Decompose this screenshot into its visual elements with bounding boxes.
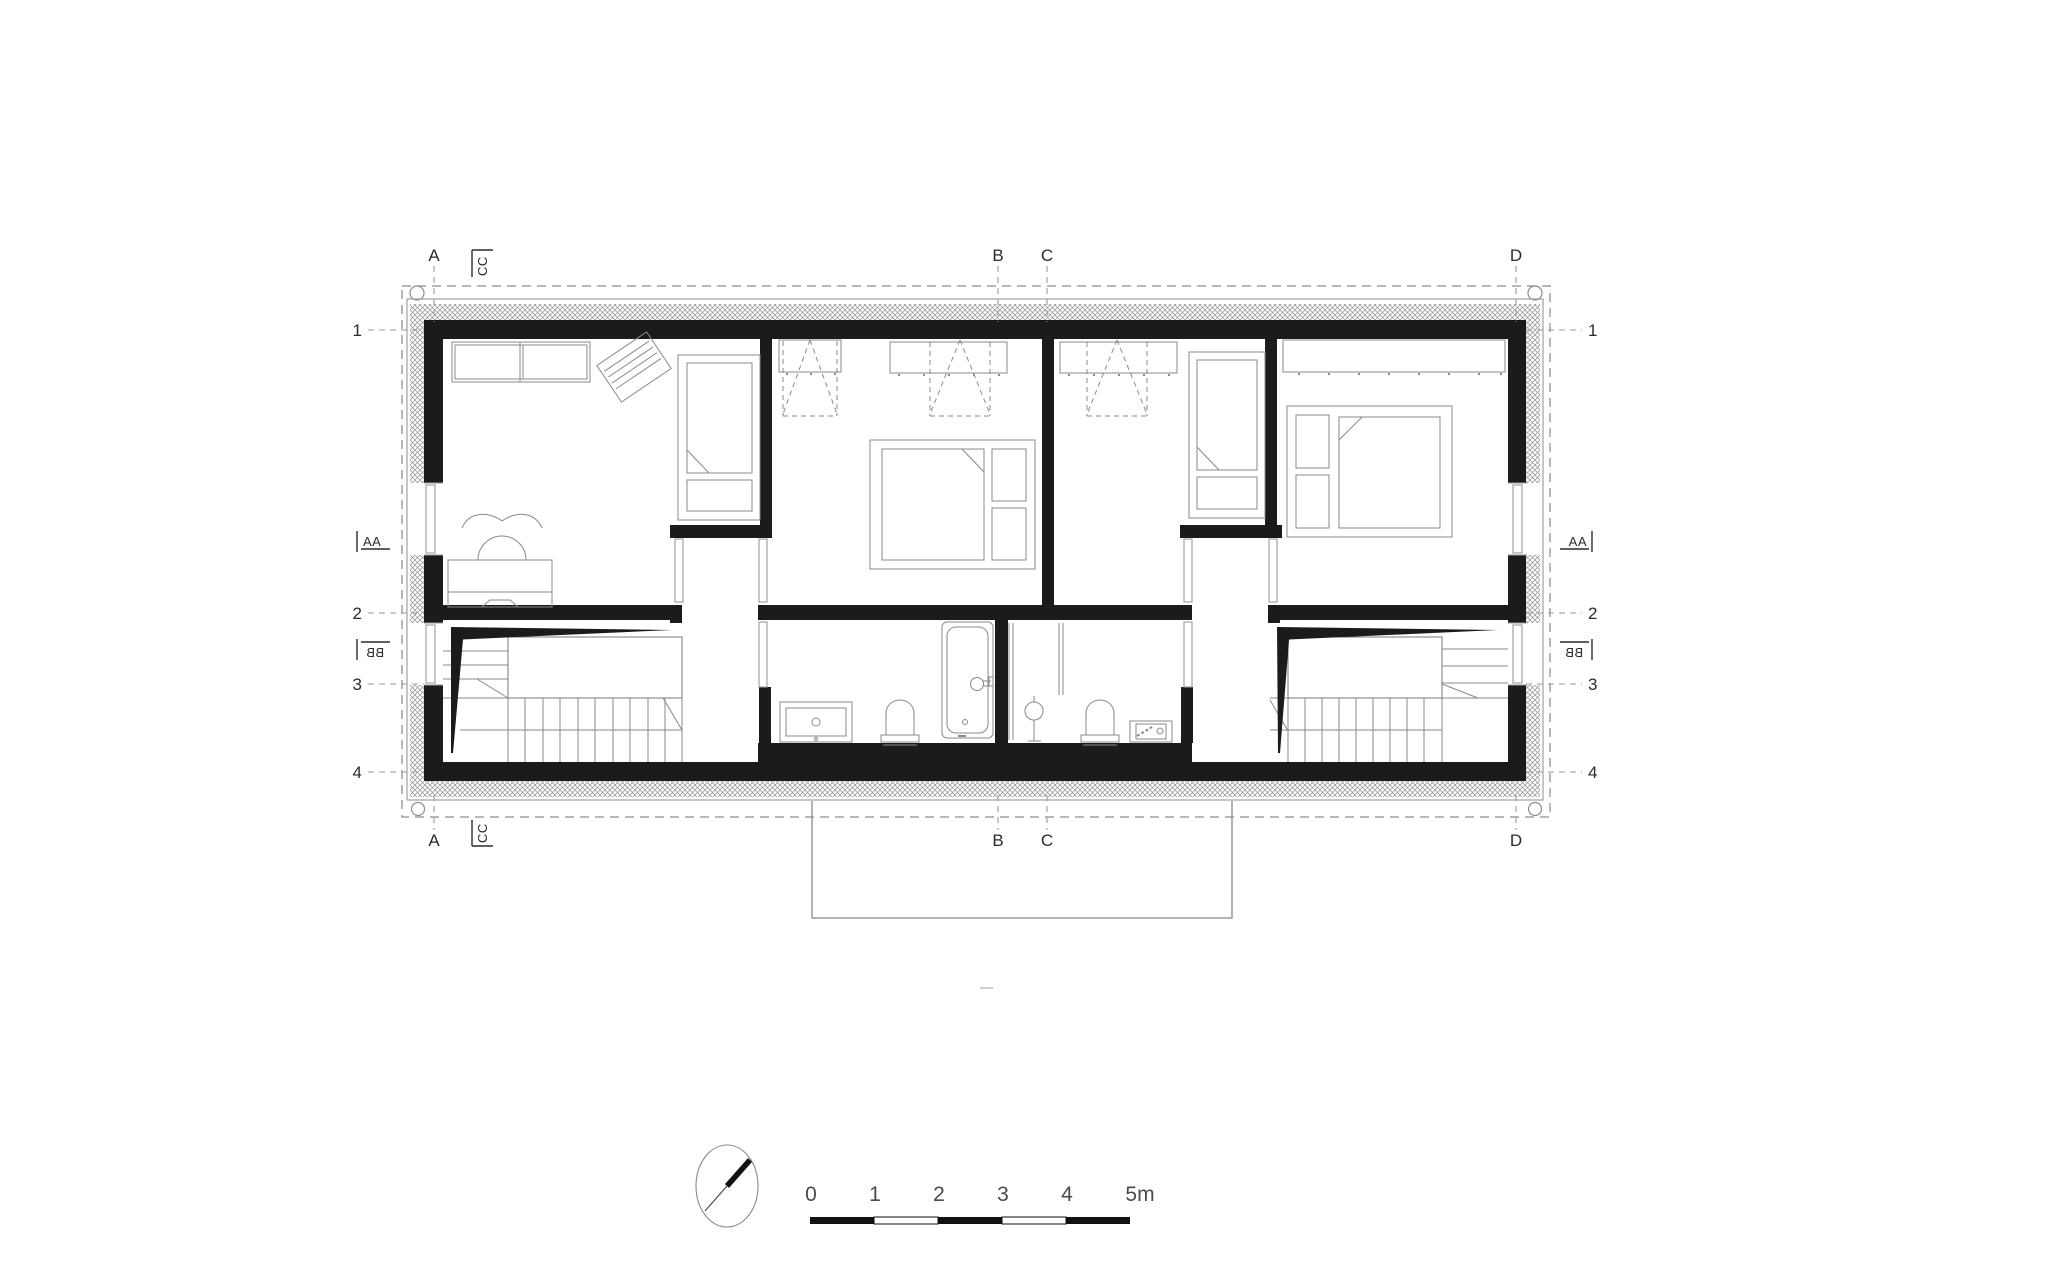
exterior-wall-bathroom-strip [758, 743, 1192, 763]
interior-walls [443, 339, 1508, 743]
grid-label-c-top: C [1041, 246, 1053, 265]
floor-plan-sheet: A B C D A B C D 1 2 3 4 1 2 3 4 AA AA [0, 0, 2048, 1281]
cabinet [452, 342, 590, 382]
section-marker-aa-right: AA [1560, 531, 1592, 552]
svg-text:BB: BB [366, 645, 384, 660]
grid-label-1-left: 1 [353, 321, 362, 340]
stair-cut-line [1277, 627, 1498, 753]
scale-tick-0: 0 [805, 1183, 817, 1206]
roof-window [890, 340, 1007, 416]
scale-tick-4: 4 [1061, 1183, 1073, 1206]
lower-storey-outline [812, 801, 1232, 918]
room2-furniture [870, 440, 1035, 569]
scale-tick-2: 2 [933, 1183, 945, 1206]
scale-tick-1: 1 [869, 1183, 881, 1206]
room4-furniture [1283, 340, 1505, 537]
bathroom-right [1009, 623, 1172, 745]
grid-label-4-right: 4 [1588, 763, 1597, 782]
section-marker-bb-right: BB [1560, 639, 1592, 660]
grid-label-3-left: 3 [353, 675, 362, 694]
section-marker-cc-bottom: CC [472, 820, 493, 846]
grid-label-4-left: 4 [353, 763, 362, 782]
shower [1009, 623, 1063, 741]
scale-tick-5m: 5m [1125, 1183, 1154, 1206]
grid-label-b-top: B [992, 246, 1003, 265]
grid-label-3-right: 3 [1588, 675, 1597, 694]
section-marker-aa-left: AA [357, 531, 390, 552]
boundary-corner-circle [1529, 803, 1542, 816]
toilet [1081, 700, 1119, 745]
grid-label-c-bottom: C [1041, 831, 1053, 850]
door-opening [1184, 622, 1192, 687]
staircase-right [1270, 627, 1508, 762]
section-marker-bb-left: BB [357, 639, 390, 660]
hand-sink [1130, 721, 1172, 742]
scale-bar: 0 1 2 3 4 5m [805, 1183, 1154, 1224]
svg-text:AA: AA [1569, 534, 1587, 549]
boundary-corner-circle [412, 803, 425, 816]
roof-window [779, 340, 841, 416]
svg-text:CC: CC [475, 256, 490, 276]
staircase-left [443, 627, 682, 762]
room1-furniture [448, 332, 760, 607]
grid-label-1-right: 1 [1588, 321, 1597, 340]
windows [409, 483, 1542, 685]
grid-label-a-top: A [428, 246, 440, 265]
door-opening [759, 622, 767, 687]
section-marker-cc-top: CC [472, 250, 493, 277]
roof-window [1060, 340, 1177, 416]
floor-plan-drawing: A B C D A B C D 1 2 3 4 1 2 3 4 AA AA [0, 0, 2048, 1281]
lounge-chair [597, 332, 671, 402]
north-arrow-compass [696, 1145, 758, 1227]
desk [448, 560, 552, 607]
grid-label-d-bottom: D [1510, 831, 1522, 850]
stair-cut-line [451, 627, 672, 753]
door-opening [1184, 539, 1192, 602]
bed-single [678, 355, 760, 520]
sink-vanity [780, 702, 852, 742]
boundary-corner-circle [410, 286, 424, 300]
svg-text:BB: BB [1565, 645, 1583, 660]
plot-boundary [402, 286, 1550, 817]
bathroom-left [780, 622, 993, 745]
grid-label-2-left: 2 [353, 604, 362, 623]
grid-label-d-top: D [1510, 246, 1522, 265]
bed-double [870, 440, 1035, 569]
door-opening [1269, 539, 1277, 602]
door-opening [759, 539, 767, 602]
roof-windows [779, 340, 1177, 416]
door-opening [675, 539, 683, 602]
grid-label-b-bottom: B [992, 831, 1003, 850]
grid-label-a-bottom: A [428, 831, 440, 850]
bed-single [1189, 352, 1265, 518]
toilet [881, 700, 919, 745]
wardrobe-shelf [1283, 340, 1505, 374]
scale-tick-3: 3 [997, 1183, 1009, 1206]
desk-chair [462, 514, 542, 560]
room3-furniture [1189, 352, 1265, 518]
exterior-wall [424, 320, 1526, 781]
svg-text:AA: AA [363, 534, 381, 549]
grid-label-2-right: 2 [1588, 604, 1597, 623]
bathtub [942, 622, 993, 738]
bed-double [1287, 406, 1452, 537]
svg-text:CC: CC [475, 823, 490, 843]
boundary-corner-circle [1528, 286, 1542, 300]
